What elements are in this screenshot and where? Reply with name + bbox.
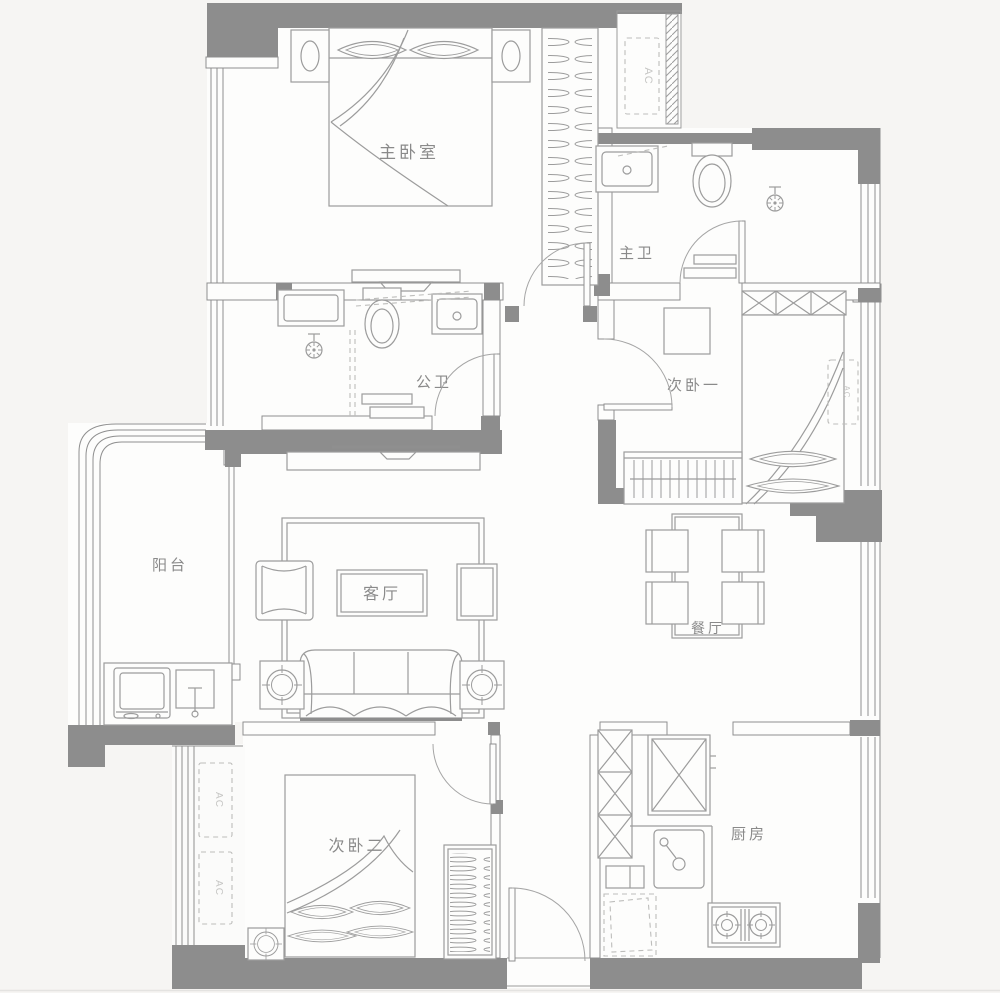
- floor-plan-canvas: 主卧室 AC 主卫: [0, 0, 1000, 993]
- guest-bath-vanity: [278, 290, 344, 326]
- floor-entry-threshold: [507, 958, 590, 988]
- kitchen-tall-cabinet: [598, 730, 632, 858]
- floor-plan-page: 主卧室 AC 主卫: [0, 0, 1000, 993]
- stove: [708, 903, 780, 947]
- kitchen-small-box: [606, 866, 644, 888]
- side-table-right: [460, 661, 504, 709]
- label-ac-master: AC: [642, 67, 654, 84]
- label-balcony: 阳台: [152, 557, 188, 574]
- master-bed: [329, 28, 492, 206]
- armchair: [256, 561, 313, 620]
- master-bath-toilet: [692, 143, 732, 207]
- sofa: [300, 650, 462, 720]
- label-kitchen: 厨房: [731, 826, 767, 843]
- label-ac-bedroom-one: AC: [842, 385, 851, 398]
- label-bedroom-one: 次卧一: [667, 377, 721, 394]
- bedroom-one-top-cabinet: [742, 291, 846, 315]
- label-master-bath: 主卫: [619, 245, 655, 262]
- label-guest-bath: 公卫: [416, 374, 452, 391]
- bedroom-one-slat-bench: [624, 452, 742, 504]
- master-nightstand-left: [291, 30, 329, 82]
- bedroom-one-desk: [664, 308, 710, 354]
- master-nightstand-right: [492, 30, 530, 82]
- label-living-room: 客厅: [363, 585, 401, 603]
- master-bath-vanity: [596, 146, 668, 192]
- side-table-left: [260, 661, 304, 709]
- bedroom-two-cabinet: [444, 845, 496, 959]
- bedroom-two-bed: [285, 775, 415, 957]
- floor-ac-ledge: [172, 744, 245, 945]
- label-ac-ledge-lower: AC: [213, 880, 224, 896]
- washing-machine: [114, 668, 170, 719]
- kitchen-sink: [654, 830, 704, 888]
- label-ac-ledge-upper: AC: [213, 792, 224, 808]
- label-bedroom-two: 次卧二: [328, 837, 385, 855]
- fridge: [648, 735, 716, 815]
- bedroom-one-bed: [742, 315, 844, 504]
- label-master-bedroom: 主卧室: [379, 143, 439, 162]
- bedroom-two-nightstand: [248, 928, 284, 960]
- side-unit: [457, 564, 497, 620]
- label-dining-room: 餐厅: [691, 620, 725, 636]
